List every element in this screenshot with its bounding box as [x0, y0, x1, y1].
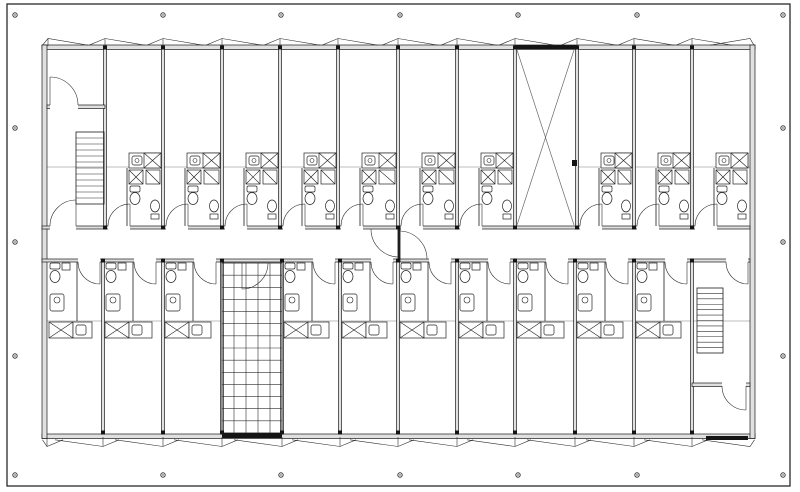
corridor-double-door	[371, 226, 427, 262]
toilet-symbol	[285, 263, 295, 283]
sink-symbol	[401, 294, 415, 311]
stairwell-right	[692, 259, 750, 441]
bed-symbol	[366, 322, 387, 338]
toilet-symbol	[659, 186, 669, 205]
guest-room-top	[637, 153, 690, 230]
shower-symbol	[658, 170, 672, 184]
shower-symbol	[362, 170, 376, 184]
bed-symbol	[541, 322, 564, 338]
shower-symbol	[246, 170, 260, 184]
sink-symbol	[343, 294, 357, 311]
shower-symbol	[422, 170, 436, 184]
toilet-symbol	[482, 186, 492, 205]
toilet-symbol	[637, 263, 647, 283]
toilet-symbol	[305, 186, 315, 205]
toilet-symbol	[423, 186, 433, 205]
cistern-symbol	[413, 263, 421, 270]
wc-symbol	[503, 200, 512, 219]
guest-room-bottom	[342, 259, 393, 339]
closet-symbol	[321, 170, 335, 184]
shower-symbol	[379, 153, 396, 168]
cistern-symbol	[178, 263, 186, 270]
sink-symbol	[518, 294, 532, 311]
sink-symbol	[166, 294, 180, 311]
guest-room-top	[283, 153, 336, 230]
bed-foot-symbol	[284, 322, 308, 338]
floor-plan-svg	[0, 0, 800, 492]
guest-room-top	[460, 153, 513, 230]
shower-symbol	[673, 153, 690, 168]
toilet-symbol	[343, 263, 353, 283]
guest-room-bottom	[105, 259, 156, 339]
wc-symbol	[445, 200, 454, 219]
wc-symbol	[151, 200, 160, 219]
shower-symbol	[615, 153, 632, 168]
bed-symbol	[129, 322, 152, 338]
bed-foot-symbol	[400, 322, 424, 338]
closet-symbol	[498, 170, 512, 184]
bed-symbol	[73, 322, 92, 338]
wc-symbol	[210, 200, 219, 219]
guest-room-bottom	[517, 259, 568, 339]
elevator-shaft	[515, 45, 577, 225]
sink-symbol	[50, 294, 64, 311]
cistern-symbol	[297, 263, 305, 270]
toilet-symbol	[518, 263, 528, 283]
wc-symbol	[268, 200, 277, 219]
bed-foot-symbol	[105, 322, 129, 338]
stairwell-left	[47, 77, 105, 230]
toilet-symbol	[460, 263, 470, 283]
shower-symbol	[438, 153, 455, 168]
shower-symbol	[129, 170, 143, 184]
toilet-symbol	[50, 263, 60, 283]
wc-symbol	[386, 200, 395, 219]
toilet-symbol	[401, 263, 411, 283]
bed-foot-symbol	[636, 322, 660, 338]
sink-symbol	[106, 294, 120, 311]
stair-flight	[76, 132, 104, 204]
toilet-symbol	[188, 186, 198, 205]
wc-symbol	[326, 200, 335, 219]
sink-symbol	[285, 294, 299, 311]
wc-symbol	[680, 200, 689, 219]
closet-symbol	[675, 170, 689, 184]
shower-symbol	[481, 170, 495, 184]
drawing-sheet	[0, 0, 800, 492]
bed-foot-symbol	[517, 322, 541, 338]
closet-symbol	[379, 170, 395, 184]
toilet-symbol	[247, 186, 257, 205]
cistern-symbol	[355, 263, 363, 270]
closet-symbol	[733, 170, 747, 184]
wc-symbol	[738, 200, 747, 219]
bed-foot-symbol	[165, 322, 189, 338]
cistern-symbol	[472, 263, 480, 270]
closet-symbol	[263, 170, 277, 184]
shower-symbol	[144, 153, 161, 168]
guest-room-top	[166, 153, 220, 230]
toilet-symbol	[602, 186, 612, 205]
toilet-symbol	[363, 186, 373, 205]
closet-symbol	[204, 170, 219, 184]
guest-room-top	[225, 153, 278, 230]
grid-stair	[222, 263, 282, 438]
toilet-symbol	[130, 186, 140, 205]
bed-foot-symbol	[342, 322, 366, 338]
closet-symbol	[439, 170, 454, 184]
guest-room-bottom	[577, 259, 628, 339]
bed-symbol	[601, 322, 623, 338]
cistern-symbol	[649, 263, 657, 270]
guest-room-top	[341, 153, 396, 230]
guest-room-top	[695, 153, 748, 230]
shower-symbol	[187, 170, 201, 184]
shower-symbol	[261, 153, 278, 168]
bed-symbol	[424, 322, 446, 338]
sink-symbol	[460, 294, 474, 311]
stair-flight	[697, 288, 723, 353]
guest-room-bottom	[284, 259, 335, 339]
cistern-symbol	[118, 263, 126, 270]
cistern-symbol	[590, 263, 598, 270]
toilet-symbol	[106, 263, 116, 283]
toilet-symbol	[717, 186, 727, 205]
guest-rooms-top	[108, 153, 748, 230]
shower-symbol	[716, 170, 730, 184]
toilet-symbol	[166, 263, 176, 283]
guest-rooms-bottom	[49, 259, 687, 339]
bed-symbol	[189, 322, 211, 338]
bed-foot-symbol	[577, 322, 601, 338]
sink-symbol	[637, 294, 651, 311]
wc-symbol	[622, 200, 631, 219]
toilet-symbol	[578, 263, 588, 283]
cistern-symbol	[530, 263, 538, 270]
closet-symbol	[146, 170, 160, 184]
shower-symbol	[496, 153, 513, 168]
guest-room-bottom	[165, 259, 216, 339]
shower-symbol	[319, 153, 336, 168]
cistern-symbol	[62, 263, 70, 270]
guest-room-bottom	[459, 259, 510, 339]
shower-symbol	[304, 170, 318, 184]
guest-room-bottom	[636, 259, 687, 339]
shower-symbol	[601, 170, 615, 184]
shower-symbol	[731, 153, 748, 168]
guest-room-top	[401, 153, 455, 230]
guest-room-top	[580, 153, 632, 230]
shower-symbol	[203, 153, 220, 168]
closet-symbol	[618, 170, 631, 184]
sink-symbol	[578, 294, 592, 311]
bed-symbol	[483, 322, 504, 338]
guest-room-bottom	[49, 259, 100, 339]
bed-symbol	[660, 322, 681, 338]
bed-foot-symbol	[49, 322, 73, 338]
guest-room-bottom	[400, 259, 451, 339]
guest-room-top	[108, 153, 161, 230]
bed-symbol	[308, 322, 329, 338]
bed-foot-symbol	[459, 322, 483, 338]
